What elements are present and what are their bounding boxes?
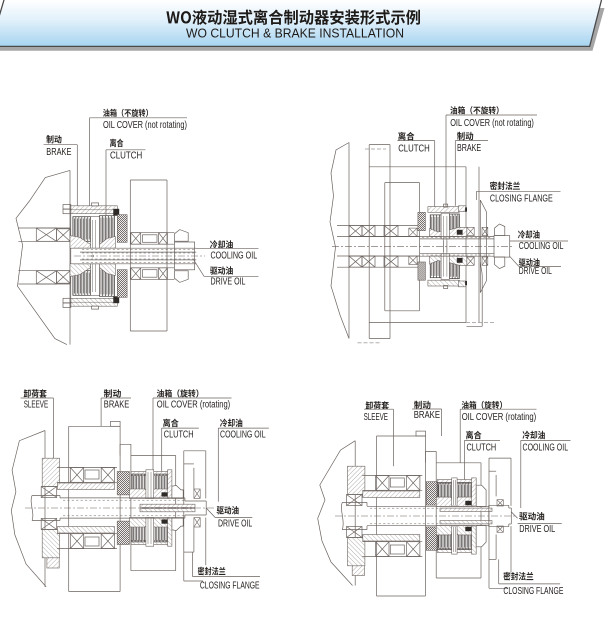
svg-text:BRAKE: BRAKE	[457, 143, 481, 154]
svg-text:COOLING OIL: COOLING OIL	[523, 442, 569, 453]
svg-text:BRAKE: BRAKE	[104, 399, 130, 410]
svg-text:CLUTCH: CLUTCH	[110, 151, 142, 162]
svg-text:BRAKE: BRAKE	[414, 410, 441, 421]
svg-text:DRIVE OIL: DRIVE OIL	[218, 519, 253, 530]
svg-text:SLEEVE: SLEEVE	[364, 412, 389, 423]
svg-text:CLUTCH: CLUTCH	[398, 144, 430, 155]
svg-text:DRIVE OIL: DRIVE OIL	[519, 524, 555, 535]
svg-text:CLOSING FLANGE: CLOSING FLANGE	[490, 194, 553, 205]
svg-text:CLUTCH: CLUTCH	[164, 430, 194, 441]
svg-text:WO CLUTCH & BRAKE INSTALLATION: WO CLUTCH & BRAKE INSTALLATION	[186, 26, 404, 41]
svg-text:BRAKE: BRAKE	[46, 147, 71, 158]
svg-text:OIL COVER (not rotating): OIL COVER (not rotating)	[103, 120, 187, 131]
svg-text:CLUTCH: CLUTCH	[467, 442, 497, 453]
svg-text:OIL COVER (not rotating): OIL COVER (not rotating)	[450, 118, 534, 129]
svg-text:COOLING OIL: COOLING OIL	[519, 241, 564, 252]
svg-text:CLOSING FLANGE: CLOSING FLANGE	[200, 580, 260, 591]
svg-text:CLOSING FLANGE: CLOSING FLANGE	[503, 586, 563, 597]
svg-text:COOLING OIL: COOLING OIL	[211, 250, 258, 261]
svg-text:OIL COVER (rotating): OIL COVER (rotating)	[157, 399, 230, 410]
svg-text:OIL COVER (rotating): OIL COVER (rotating)	[462, 412, 537, 423]
svg-text:SLEEVE: SLEEVE	[24, 399, 49, 410]
svg-text:DRIVE OIL: DRIVE OIL	[211, 277, 246, 288]
svg-text:DRIVE OIL: DRIVE OIL	[519, 266, 552, 277]
svg-text:COOLING OIL: COOLING OIL	[220, 430, 266, 441]
